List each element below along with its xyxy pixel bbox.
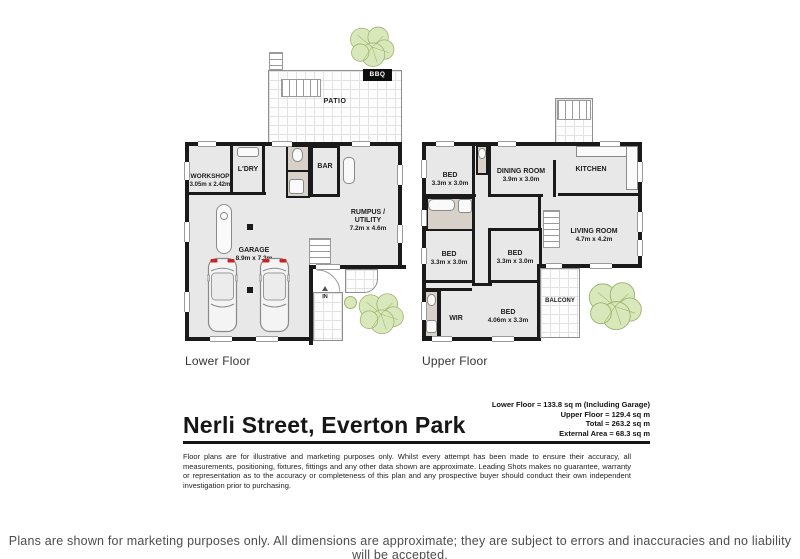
bar-counter-icon <box>343 157 355 184</box>
window <box>421 302 427 320</box>
window <box>397 165 403 185</box>
post-marker <box>247 287 253 293</box>
tree-icon <box>355 289 407 339</box>
wall <box>558 193 638 196</box>
window <box>352 141 370 147</box>
wall <box>286 170 310 172</box>
window <box>184 292 190 312</box>
shower-icon <box>426 320 437 333</box>
room-label-balcony: BALCONY <box>536 297 584 305</box>
room-label-living: LIVING ROOM 4.7m x 4.2m <box>558 220 630 252</box>
bbq-badge: BBQ <box>363 69 392 81</box>
wall <box>553 160 556 197</box>
room-dims: 3.9m x 3.0m <box>489 176 553 184</box>
car-icon <box>259 257 290 333</box>
disclaimer-text: Floor plans are for illustrative and mar… <box>183 452 631 490</box>
room-label-bed1: BED 3.3m x 3.0m <box>426 164 474 196</box>
floor-caption-lower: Lower Floor <box>185 354 251 368</box>
tree-icon <box>584 279 646 334</box>
divider <box>183 441 650 444</box>
wall <box>422 280 475 283</box>
room-label-bed3: BED 3.3m x 3.0m <box>490 242 540 274</box>
room-dims: 4.06m x 3.3m <box>482 317 534 325</box>
room-label-kitchen: KITCHEN <box>562 166 620 174</box>
window <box>198 141 216 147</box>
room-label-bed2: BED 3.3m x 3.0m <box>424 243 474 275</box>
car-icon <box>207 257 238 333</box>
room-dims: 3.05m x 2.42m <box>186 181 234 189</box>
entry-arrow-icon <box>322 286 328 291</box>
bathtub-icon <box>428 199 455 211</box>
room-label-wir: WIR <box>442 315 470 323</box>
toilet-icon <box>427 294 436 306</box>
room-bar <box>310 145 340 197</box>
window <box>637 162 643 182</box>
window <box>590 263 612 269</box>
area-summary: Lower Floor = 133.8 sq m (Including Gara… <box>350 400 650 438</box>
room-label-entry: IN <box>313 293 337 301</box>
room-dims: 3.3m x 3.0m <box>424 259 474 267</box>
room-label-dining: DINING ROOM 3.9m x 3.0m <box>489 160 553 192</box>
window <box>432 336 452 342</box>
room-dims: 3.3m x 3.0m <box>426 180 474 188</box>
patio-stairs-icon <box>281 79 321 97</box>
room-label-bar: BAR <box>310 163 340 171</box>
window <box>421 248 427 264</box>
window <box>498 141 516 147</box>
room-dims: 7.2m x 4.6m <box>338 225 398 233</box>
wall <box>488 194 543 197</box>
window <box>637 240 643 256</box>
window <box>600 141 620 147</box>
motorbike-icon <box>220 212 228 220</box>
tree-icon <box>341 24 403 70</box>
window <box>436 141 454 147</box>
footer-note: Plans are shown for marketing purposes o… <box>0 534 800 559</box>
floor-caption-upper: Upper Floor <box>422 354 488 368</box>
room-label-rumpus: RUMPUS / UTILITY 7.2m x 4.6m <box>338 201 398 241</box>
internal-stairs-icon <box>309 238 331 266</box>
window <box>272 141 292 147</box>
room-dims: 4.7m x 4.2m <box>558 236 630 244</box>
window <box>637 212 643 232</box>
window <box>184 222 190 242</box>
room-label-patio: PATIO <box>268 98 402 106</box>
floorplan-page: BBQ PATIO BAR RUMPUS / UTILITY 7.2m x 4.… <box>0 0 800 559</box>
room-label-laundry: L'DRY <box>232 166 264 174</box>
room-label-workshop: WORKSHOP 3.05m x 2.42m <box>186 165 234 197</box>
door-arc-icon <box>316 270 340 294</box>
window <box>421 210 427 226</box>
room-label-bed4: BED 4.06m x 3.3m <box>482 301 534 333</box>
post-marker <box>247 224 253 230</box>
shower-icon <box>289 179 304 194</box>
shower-icon <box>458 199 472 213</box>
window <box>397 225 403 243</box>
toilet-icon <box>292 148 303 162</box>
window <box>184 162 190 180</box>
deck-stairs-icon <box>557 100 591 120</box>
toilet-icon <box>478 148 486 159</box>
room-dims: 3.3m x 3.0m <box>490 258 540 266</box>
exterior-stairs-icon <box>269 52 283 70</box>
window <box>492 336 514 342</box>
window <box>256 336 278 342</box>
laundry-sink-icon <box>237 147 259 157</box>
wall <box>472 283 492 286</box>
window <box>421 160 427 178</box>
window <box>210 336 232 342</box>
